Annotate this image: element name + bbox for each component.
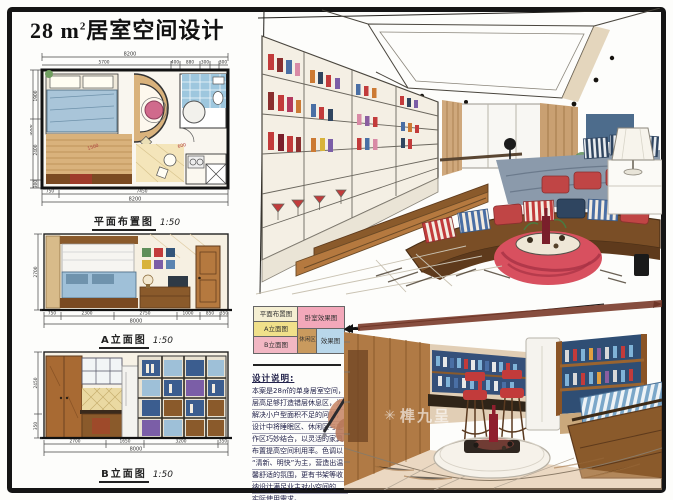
watermark: ✳ 榫九呈 — [384, 407, 451, 425]
plan-plant — [45, 70, 53, 78]
dim-top-total: 8200 — [124, 52, 137, 58]
doorway — [348, 350, 368, 442]
legend-cell-lounge-render: 效果图 — [316, 328, 345, 354]
legend-table: 平面布置图 A立面图 B立面图 卧室效果图 休闲区 效果图 — [253, 306, 344, 353]
plan-hall — [136, 144, 184, 182]
dim-seg: 300 — [33, 180, 39, 188]
dim-seg: 850 — [206, 311, 214, 317]
dim-seg: 1650 — [120, 439, 131, 445]
presentation-board: 28 m2居室空间设计 8200 5700 400 880 300 300 40… — [0, 0, 673, 500]
lamp-shade — [612, 128, 654, 160]
elev-b-kitchen — [80, 358, 122, 438]
elev-b-shelving — [138, 356, 226, 438]
watermark-star-icon: ✳ — [384, 408, 396, 424]
plan-kitchen — [186, 154, 226, 184]
floor-plan-scale: 1:50 — [160, 218, 180, 228]
dim-seg: 350 — [33, 422, 39, 430]
dim-seg: 350 — [219, 439, 227, 445]
dim-seg: 750 — [46, 189, 54, 195]
dim-seg: 1900 — [33, 90, 39, 101]
plan-wood-floor — [46, 134, 132, 184]
notes-line: “清新、明快”为主，营造出温 — [252, 458, 348, 470]
elevation-b-caption: B立面图1:50 — [30, 462, 242, 483]
elev-a-door — [196, 246, 220, 308]
white-column — [526, 338, 560, 430]
notes-line: 馨舒适的氛围，更有书架等收 — [252, 470, 348, 482]
elev-b-fridge — [122, 366, 138, 438]
dim-seg: 2450 — [33, 377, 39, 388]
elevation-b-drawing: 2700 1650 3200 350 8000 2450 350 — [30, 346, 242, 462]
dim-left-total: 4000 — [30, 124, 34, 135]
dim-seg: 7450 — [137, 189, 148, 195]
elevation-a-scale: 1:50 — [153, 336, 173, 346]
elevation-b-scale: 1:50 — [153, 470, 173, 480]
dim-bottom-total: 8200 — [129, 197, 142, 203]
curtain-left — [442, 100, 462, 176]
wine-bottle — [542, 216, 550, 244]
dim-seg: 2700 — [70, 439, 81, 445]
dim-total: 8000 — [130, 319, 143, 325]
notes-line: 纳设计满足业主对小空间的 — [252, 482, 348, 494]
elev-a-bed-niche — [46, 236, 138, 308]
elev-b-wardrobe — [46, 356, 82, 438]
title-text: 居室空间设计 — [86, 18, 224, 43]
bedroom-rendering — [256, 8, 662, 296]
notes-line: 实际使用需求。 — [252, 494, 348, 500]
dim-total: 8000 — [130, 447, 143, 453]
legend-cell-bedroom-render: 卧室效果图 — [297, 306, 345, 330]
dim-seg: 2300 — [82, 311, 93, 317]
dim-seg: 300 — [219, 60, 227, 66]
lounge-rendering: ✳ 榫九呈 — [344, 298, 662, 490]
dim-seg: 2750 — [140, 311, 151, 317]
wine-bottle — [489, 414, 498, 442]
dim-seg: 2400 — [33, 144, 39, 155]
dim-seg: 350 — [220, 311, 228, 317]
dim-seg: 1000 — [183, 311, 194, 317]
dim-seg: 880 — [186, 60, 194, 66]
divider-line — [253, 364, 341, 366]
dim-left: 2700 — [33, 266, 39, 277]
waste-bin — [634, 254, 649, 276]
watermark-text: 榫九呈 — [400, 407, 451, 425]
title-number: 28 m — [30, 18, 80, 43]
floor-plan-drawing: 8200 5700 400 880 300 300 4000 1900 2400… — [30, 50, 242, 210]
elevation-b-label: B立面图 — [99, 465, 149, 483]
notes-line: 布置提高空间利用率。色调以 — [252, 446, 348, 458]
notes-heading: 设计说明: — [252, 372, 348, 384]
dim-seg: 750 — [48, 311, 56, 317]
dim-seg: 400 — [171, 60, 179, 66]
page-title: 28 m2居室空间设计 — [30, 13, 224, 45]
dim-seg: 5700 — [99, 60, 110, 66]
dim-seg: 300 — [201, 60, 209, 66]
plan-bed — [46, 74, 118, 134]
legend-cell-lounge-zone: 休闲区 — [297, 328, 318, 354]
legend-cell-elev-b: B立面图 — [253, 336, 299, 354]
elevation-a-drawing: 750 2300 2750 1000 850 350 8000 2700 — [30, 228, 242, 328]
ceiling-beam — [358, 300, 662, 331]
dim-seg: 3200 — [176, 439, 187, 445]
